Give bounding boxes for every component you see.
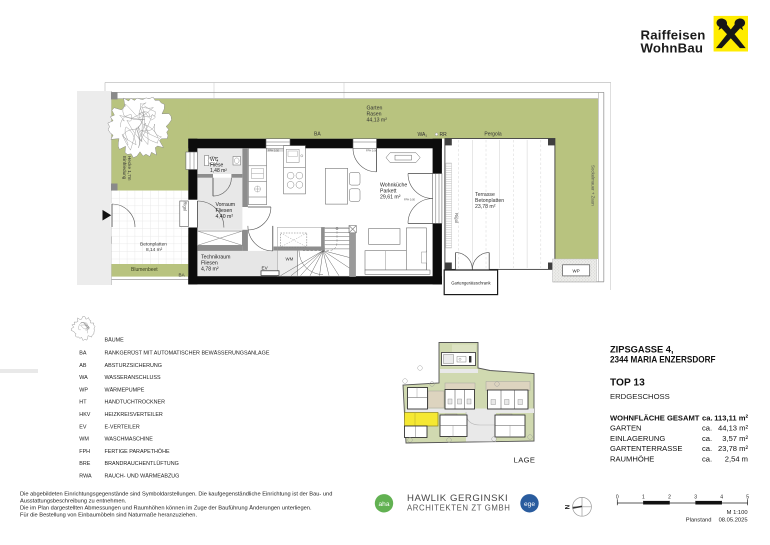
svg-text:WÄRMEPUMPE: WÄRMEPUMPE (105, 386, 145, 393)
svg-text:Für die Bestellung von Einbaum: Für die Bestellung von Einbaumöbeln sind… (20, 513, 197, 519)
svg-text:WASSERANSCHLUSS: WASSERANSCHLUSS (105, 375, 162, 381)
svg-text:HAWLIK GERGINSKI: HAWLIK GERGINSKI (407, 493, 508, 504)
svg-text:3: 3 (694, 495, 697, 501)
svg-text:RANKGERÜST MIT AUTOMATISCHER B: RANKGERÜST MIT AUTOMATISCHER BEWÄSSERUNG… (105, 350, 270, 357)
svg-text:BA: BA (79, 351, 87, 357)
svg-text:2,54 m: 2,54 m (725, 455, 748, 464)
svg-text:2344 MARIA ENZERSDORF: 2344 MARIA ENZERSDORF (610, 355, 716, 365)
svg-text:HT: HT (79, 400, 87, 406)
svg-text:WASCHMASCHINE: WASCHMASCHINE (105, 437, 154, 443)
svg-text:BRANDRAUCHENTLÜFTUNG: BRANDRAUCHENTLÜFTUNG (105, 460, 179, 467)
svg-text:TOP 13: TOP 13 (610, 378, 645, 389)
svg-text:ege: ege (524, 501, 535, 508)
svg-text:1: 1 (642, 495, 645, 501)
svg-text:WM: WM (79, 437, 89, 443)
svg-text:aha: aha (378, 501, 389, 508)
svg-text:4: 4 (720, 495, 723, 501)
svg-text:RAUMHÖHE: RAUMHÖHE (610, 455, 654, 464)
svg-text:E-VERTEILER: E-VERTEILER (105, 424, 140, 430)
svg-text:ca.: ca. (702, 424, 712, 433)
svg-text:BRE: BRE (79, 461, 90, 467)
svg-text:N: N (565, 504, 572, 509)
svg-text:HEIZKREISVERTEILER: HEIZKREISVERTEILER (105, 412, 163, 418)
svg-text:WA: WA (79, 375, 88, 381)
svg-text:FPH: FPH (79, 449, 90, 455)
svg-text:FERTIGE PARAPETHÖHE: FERTIGE PARAPETHÖHE (105, 448, 171, 455)
svg-text:RWA: RWA (79, 474, 92, 480)
svg-text:ca.: ca. (702, 444, 712, 453)
svg-text:ca.: ca. (702, 455, 712, 464)
svg-text:ABSTURZSICHERUNG: ABSTURZSICHERUNG (105, 363, 163, 369)
svg-text:AB: AB (79, 363, 87, 369)
svg-text:2: 2 (668, 495, 671, 501)
svg-text:WOHNFLÄCHE GESAMT: WOHNFLÄCHE GESAMT (610, 413, 700, 422)
svg-text:23,78 m²: 23,78 m² (718, 444, 748, 453)
svg-text:GARTENTERRASSE: GARTENTERRASSE (610, 444, 682, 453)
svg-text:HANDTUCHTROCKNER: HANDTUCHTROCKNER (105, 400, 166, 406)
svg-text:M 1:100: M 1:100 (727, 510, 748, 516)
svg-text:WP: WP (79, 387, 88, 393)
svg-text:5: 5 (746, 495, 749, 501)
svg-text:44,13 m²: 44,13 m² (718, 424, 748, 433)
svg-text:EINLAGERUNG: EINLAGERUNG (610, 434, 665, 443)
svg-text:Die abgebildeten Einrichtungsg: Die abgebildeten Einrichtungsgegenstände… (20, 492, 332, 498)
svg-text:ZIPSGASSE 4,: ZIPSGASSE 4, (610, 345, 674, 355)
svg-text:Die im Plan dargestellten Abme: Die im Plan dargestellten Abmessungen un… (20, 505, 312, 512)
svg-text:ARCHITEKTEN ZT GMBH: ARCHITEKTEN ZT GMBH (407, 504, 511, 513)
svg-text:BÄUME: BÄUME (105, 337, 125, 344)
svg-text:ca.: ca. (702, 413, 713, 422)
svg-text:0: 0 (616, 495, 619, 501)
svg-text:Planstand: Planstand (686, 518, 712, 524)
svg-text:RAUCH- UND WÄRMEABZUG: RAUCH- UND WÄRMEABZUG (105, 473, 180, 480)
svg-text:3,57 m²: 3,57 m² (722, 434, 748, 443)
svg-text:Ausstattungsbeschreibung zu en: Ausstattungsbeschreibung zu entnehmen. (20, 499, 127, 505)
svg-text:WohnBau: WohnBau (641, 40, 704, 55)
svg-text:08.05.2025: 08.05.2025 (719, 518, 748, 524)
svg-text:GARTEN: GARTEN (610, 424, 642, 433)
svg-text:EV: EV (79, 424, 87, 430)
svg-text:ERDGESCHOSS: ERDGESCHOSS (610, 392, 670, 401)
svg-text:ca.: ca. (702, 434, 712, 443)
svg-text:113,11 m²: 113,11 m² (714, 413, 748, 422)
svg-text:HKV: HKV (79, 412, 90, 418)
